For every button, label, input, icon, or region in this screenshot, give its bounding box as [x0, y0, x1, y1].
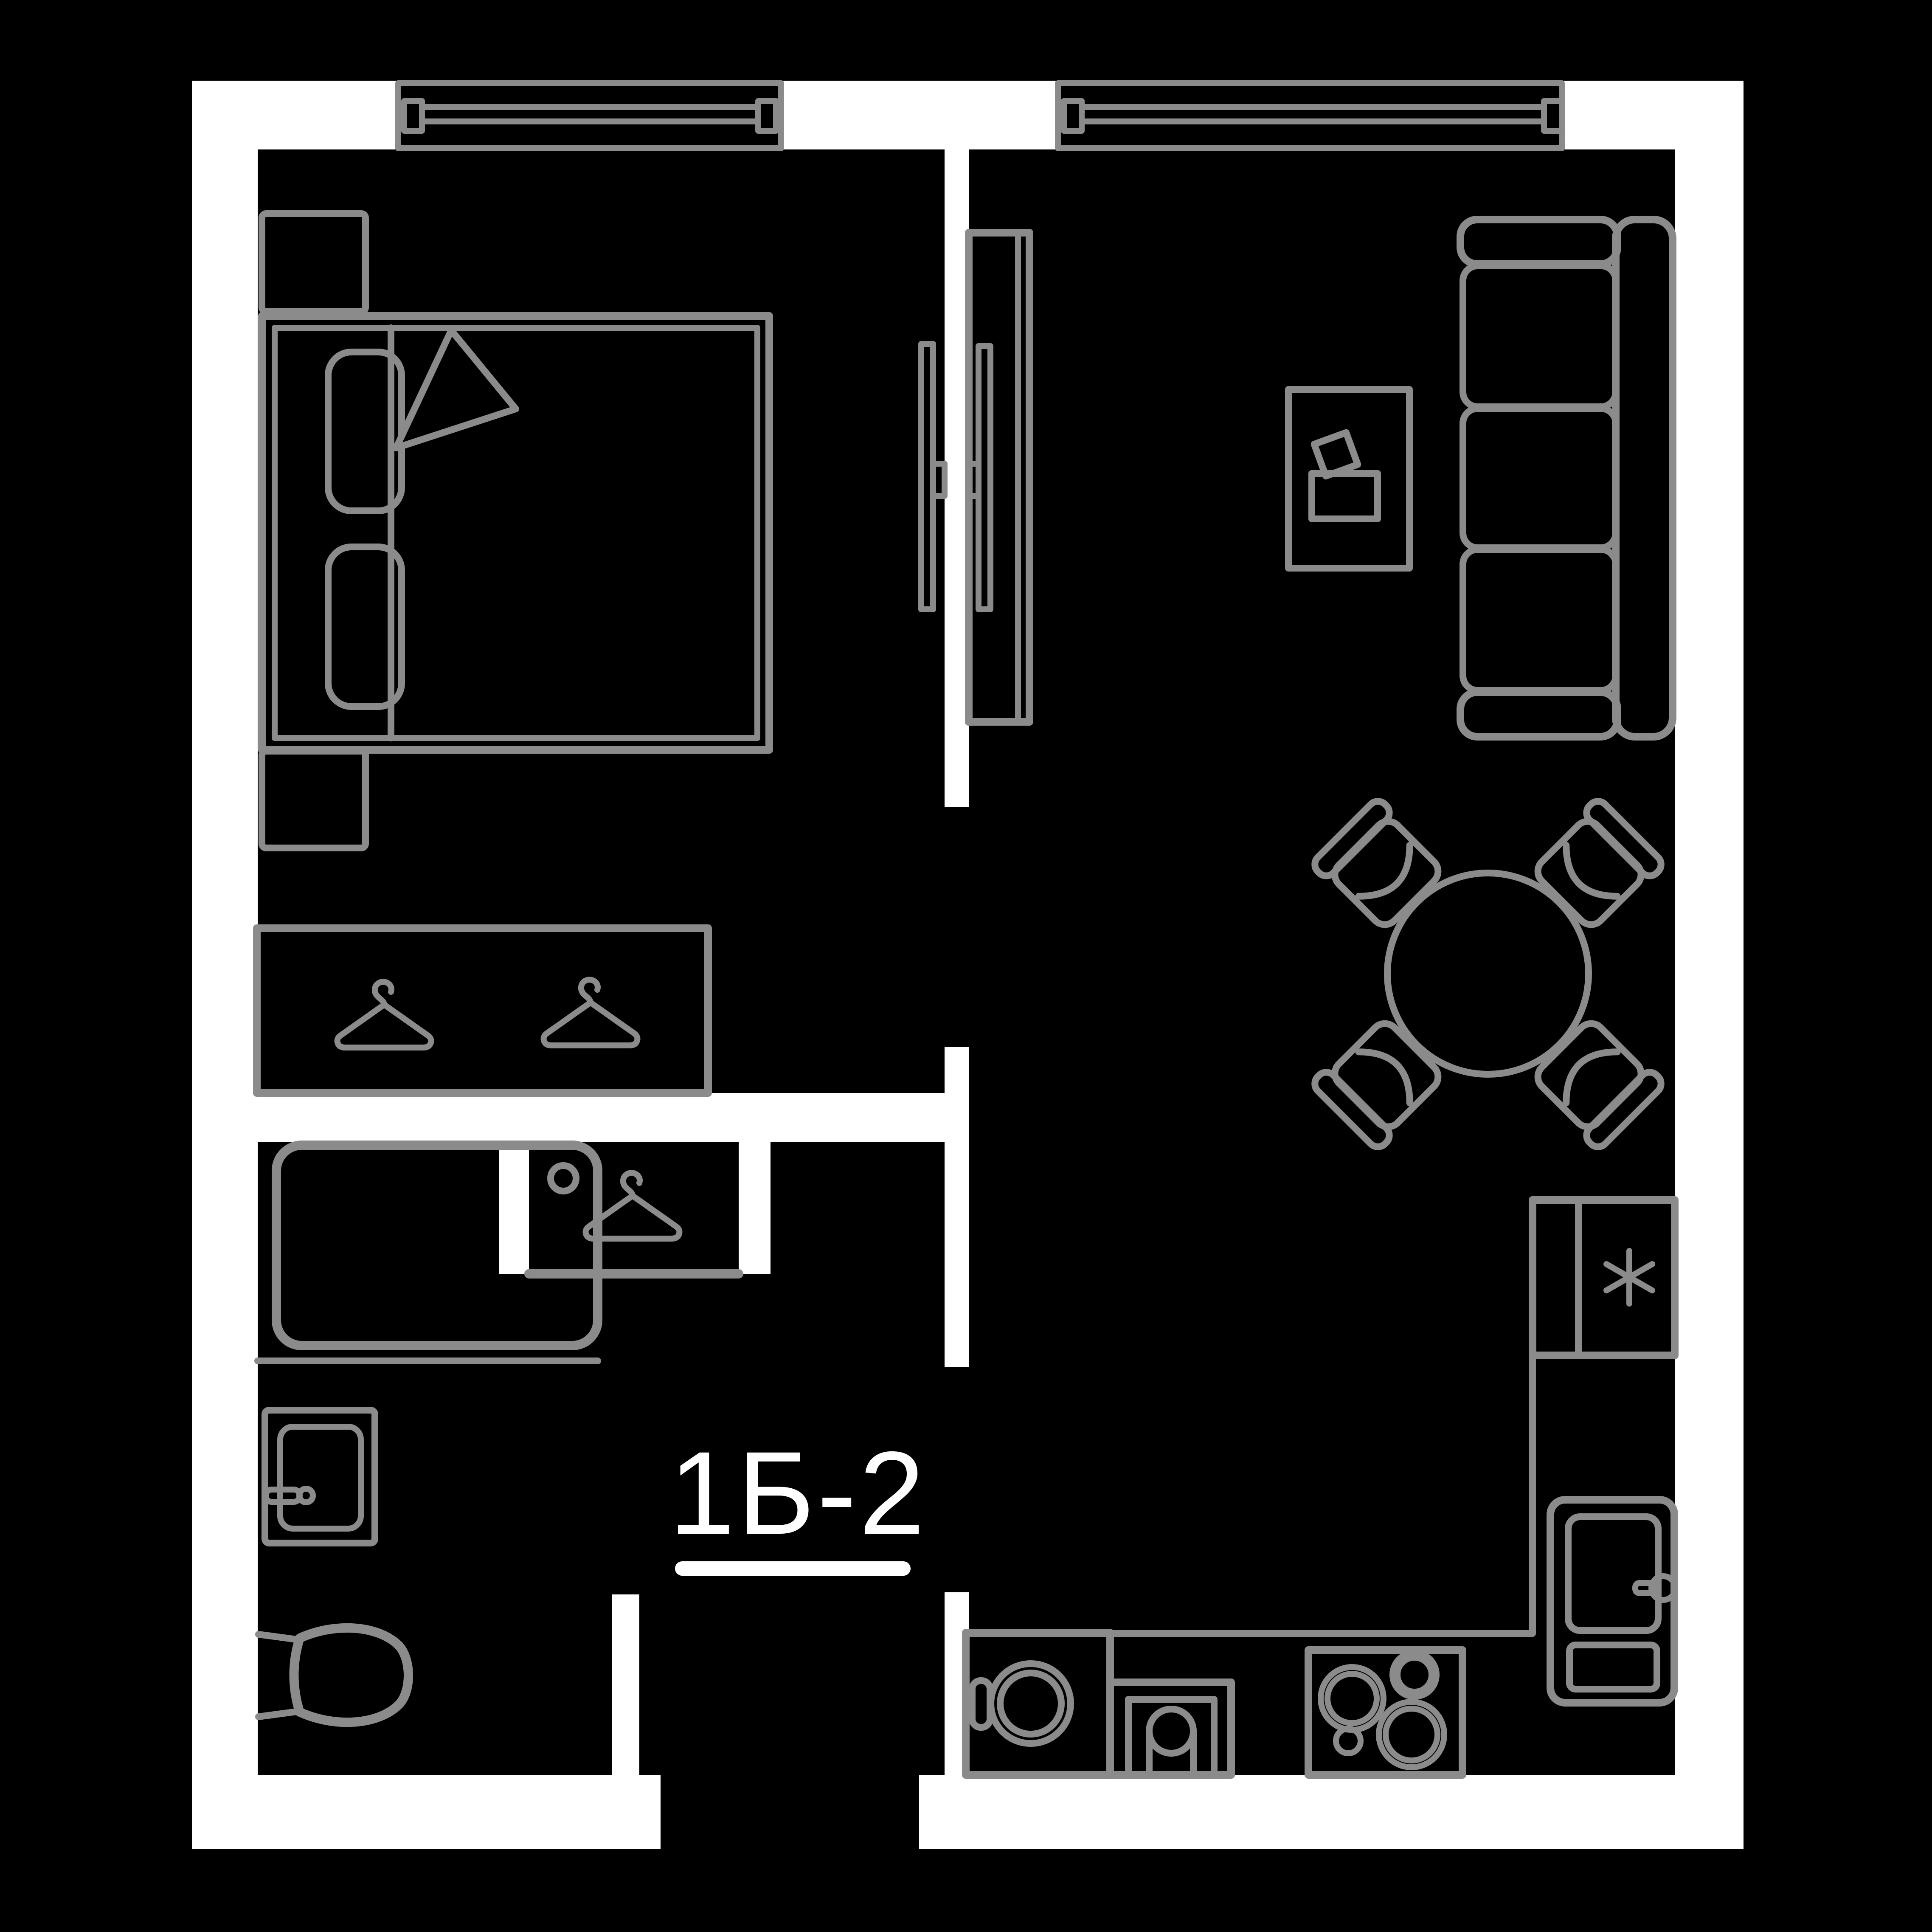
- burner: [1327, 1674, 1377, 1723]
- snowflake-asterisk-icon: [1606, 1251, 1652, 1304]
- unit-label: 1Б-2: [669, 1427, 927, 1559]
- clothes-hanger-icon: [544, 980, 638, 1045]
- sofa-back: [1616, 220, 1673, 737]
- living-room-window: [1058, 83, 1562, 148]
- chair-icon: [1528, 1014, 1665, 1151]
- burner: [1386, 1709, 1437, 1760]
- washer-drum-inner: [1000, 1673, 1061, 1734]
- sofa-armrest: [1460, 692, 1617, 737]
- tv-bracket: [970, 464, 979, 496]
- book-on-table: [1312, 473, 1378, 519]
- living-room: [969, 220, 1673, 737]
- double-bed-icon: [262, 316, 769, 750]
- kitchen-sink-icon: [1550, 1500, 1675, 1703]
- toilet-icon: [259, 1628, 408, 1722]
- blanket-fold-icon: [396, 330, 516, 448]
- sofa-cushion: [1463, 408, 1616, 548]
- hallway: 1Б-2: [529, 1173, 927, 1569]
- washing-machine-icon: [966, 1633, 1110, 1775]
- sofa-cushion: [1463, 266, 1616, 407]
- sofa-armrest: [1460, 220, 1617, 264]
- tilted-item-on-table: [1314, 433, 1358, 476]
- kitchen: [966, 1200, 1675, 1775]
- wall-bottom-segment-left: [192, 1775, 661, 1849]
- fridge-freezer-icon: [1533, 1200, 1675, 1355]
- window-icon: [1058, 83, 1562, 148]
- wall-closet-right: [739, 1142, 771, 1274]
- coffee-table-icon: [1288, 389, 1409, 568]
- window-mullion-left: [404, 101, 422, 131]
- wall-left: [192, 81, 258, 1849]
- bathroom: [258, 1145, 598, 1722]
- toilet-tank-line: [259, 1634, 300, 1640]
- sink-tray: [1569, 1645, 1657, 1689]
- chair-icon: [1310, 797, 1448, 934]
- window-mullion-left: [1064, 101, 1082, 131]
- washer-door-hinge: [972, 1681, 990, 1727]
- toilet-tank-line: [259, 1711, 300, 1717]
- sofa-icon: [1460, 220, 1673, 737]
- round-dining-table-icon: [1387, 873, 1589, 1074]
- kitchen-counter-icon: [969, 1355, 1533, 1633]
- wall-top-segment-left: [192, 81, 398, 149]
- bedroom: [257, 214, 945, 1093]
- wall-bedroom-south: [258, 1093, 969, 1142]
- wall-top-segment-middle: [781, 81, 1058, 149]
- washbasin-icon: [265, 1410, 375, 1543]
- tv-bracket: [933, 464, 945, 496]
- shower-drain: [551, 1166, 576, 1191]
- burner: [1398, 1658, 1431, 1692]
- toilet-bowl: [294, 1628, 409, 1722]
- wall-bathroom-closet-divider: [499, 1142, 529, 1274]
- window-icon: [398, 83, 781, 148]
- window-mullion-right: [758, 101, 776, 131]
- basin-bowl: [280, 1427, 361, 1529]
- wardrobe-icon: [257, 928, 708, 1093]
- cooktop-icon: [1308, 1650, 1462, 1775]
- oven-dial: [1149, 1709, 1193, 1753]
- floor-plan: 1Б-2: [0, 0, 1932, 1932]
- wall-entry-stub: [612, 1594, 639, 1775]
- clothes-hanger-icon: [337, 982, 431, 1048]
- bed-mattress: [275, 328, 757, 738]
- burner: [1379, 1702, 1444, 1767]
- chair-icon: [1310, 1014, 1448, 1151]
- chair-icon: [1528, 797, 1665, 934]
- basin-faucet-knob: [299, 1489, 313, 1502]
- nightstand-icon: [262, 751, 366, 848]
- wall-right: [1675, 81, 1744, 1849]
- nightstand-icon: [262, 214, 366, 312]
- oven-icon: [1110, 1682, 1231, 1775]
- dining-set: [1310, 797, 1665, 1151]
- window-mullion-right: [1544, 101, 1562, 131]
- fridge-body: [1533, 1200, 1675, 1355]
- bedroom-window: [398, 83, 781, 148]
- sink-bowl: [1568, 1517, 1658, 1631]
- sofa-cushion: [1463, 549, 1616, 690]
- wall-bottom-segment-right: [919, 1775, 1744, 1849]
